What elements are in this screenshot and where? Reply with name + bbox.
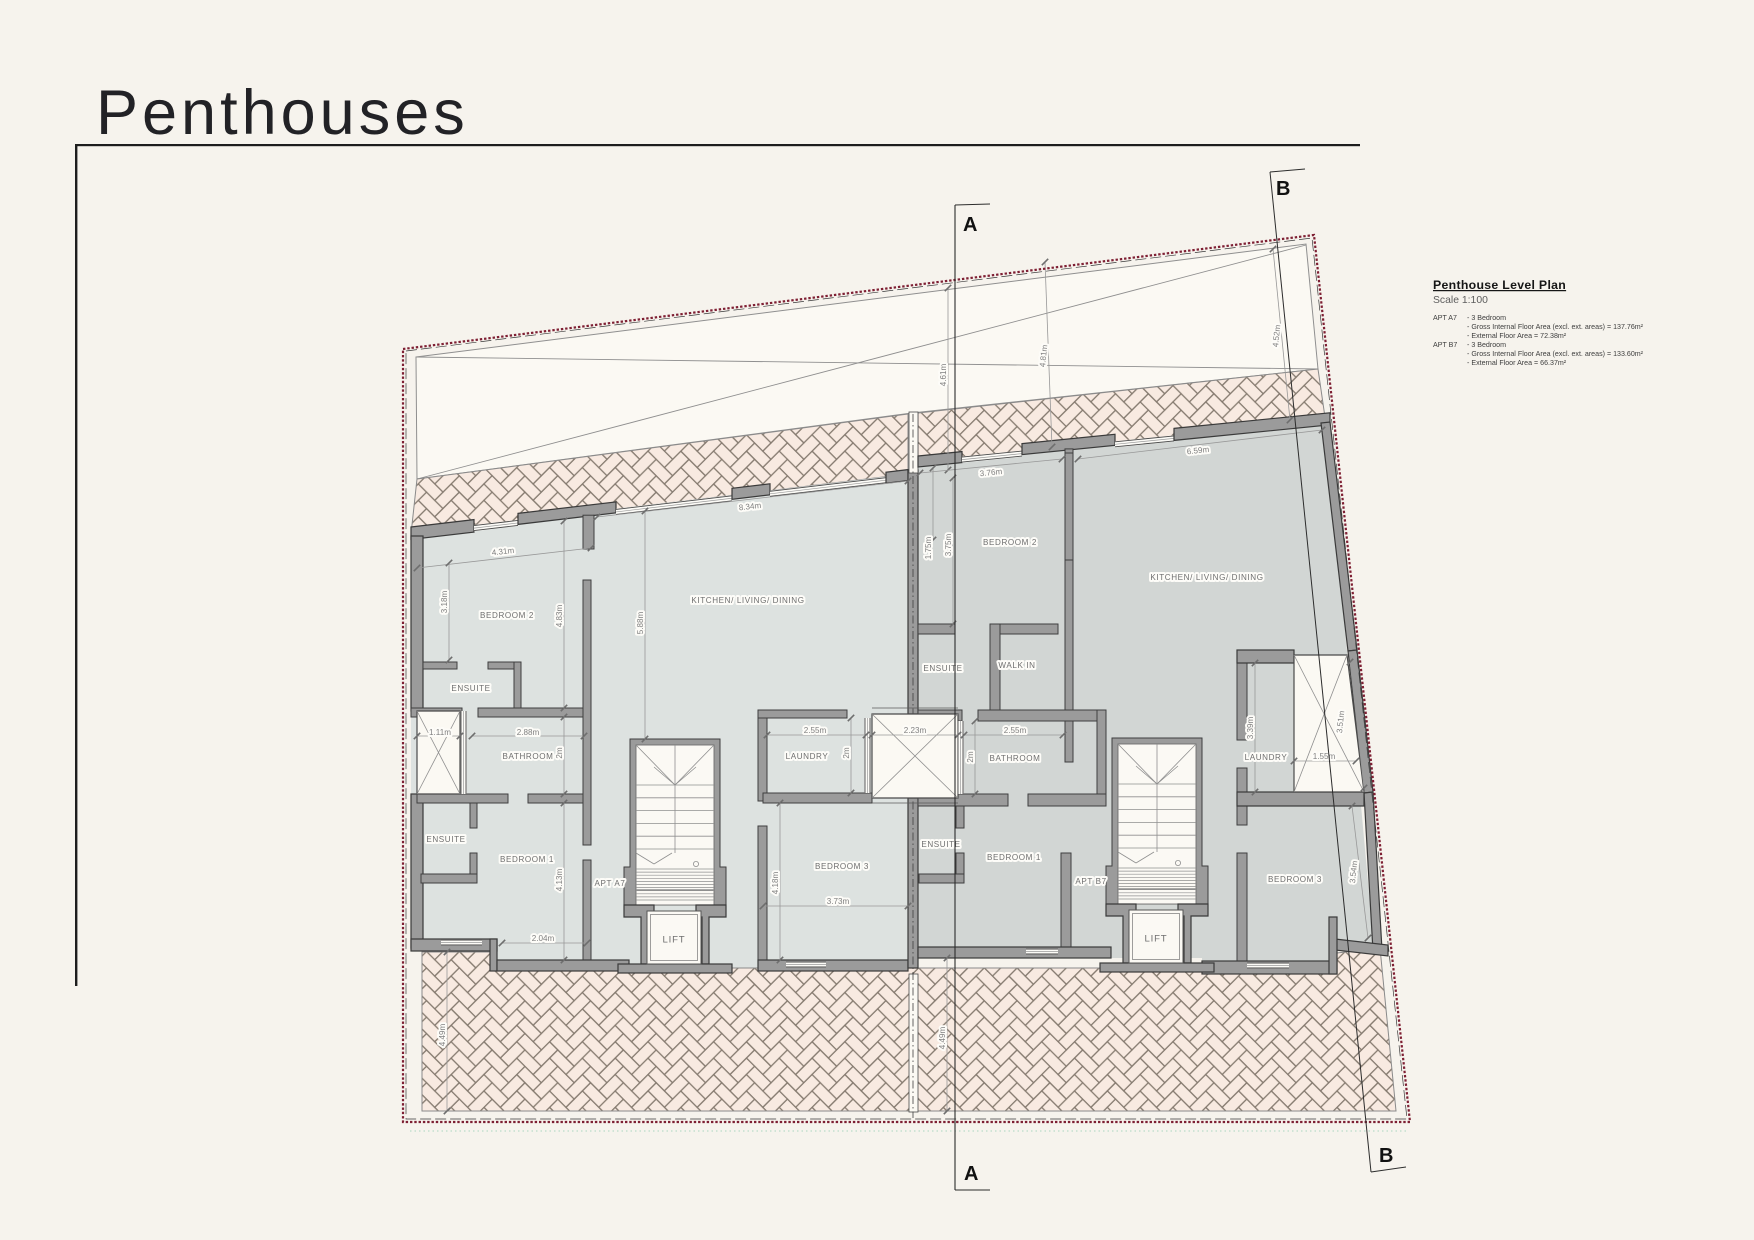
svg-text:A: A	[963, 214, 977, 236]
svg-text:- Gross Internal Floor Area (: - Gross Internal Floor Area (excl. ext. …	[1467, 350, 1644, 358]
svg-text:APT A7: APT A7	[1433, 314, 1457, 322]
svg-text:KITCHEN/ LIVING/ DINING: KITCHEN/ LIVING/ DINING	[1150, 573, 1263, 582]
svg-text:Penthouses: Penthouses	[96, 78, 469, 148]
svg-text:1.75m: 1.75m	[924, 536, 933, 559]
svg-text:2.55m: 2.55m	[804, 726, 827, 735]
svg-text:BEDROOM 2: BEDROOM 2	[480, 611, 534, 620]
svg-text:Penthouse Level Plan: Penthouse Level Plan	[1433, 278, 1566, 292]
svg-text:A: A	[964, 1163, 978, 1185]
svg-text:B: B	[1276, 178, 1290, 200]
svg-text:BEDROOM 3: BEDROOM 3	[1268, 875, 1322, 884]
svg-text:LIFT: LIFT	[1145, 934, 1168, 945]
svg-text:LAUNDRY: LAUNDRY	[1245, 753, 1288, 762]
svg-text:5.88m: 5.88m	[636, 611, 645, 634]
svg-text:3.73m: 3.73m	[827, 897, 850, 906]
svg-text:WALK IN: WALK IN	[998, 661, 1035, 670]
svg-text:2.88m: 2.88m	[517, 728, 540, 737]
svg-text:2m: 2m	[966, 751, 975, 763]
svg-text:APT B7: APT B7	[1433, 341, 1457, 349]
svg-text:LAUNDRY: LAUNDRY	[786, 752, 829, 761]
svg-text:BEDROOM 1: BEDROOM 1	[500, 855, 554, 864]
svg-text:3.18m: 3.18m	[440, 590, 449, 613]
svg-text:- 3 Bedroom: - 3 Bedroom	[1467, 341, 1506, 349]
svg-text:4.13m: 4.13m	[555, 868, 564, 891]
svg-text:4.83m: 4.83m	[555, 604, 564, 627]
svg-text:4.61m: 4.61m	[939, 363, 948, 386]
svg-text:BEDROOM 1: BEDROOM 1	[987, 853, 1041, 862]
svg-text:3.39m: 3.39m	[1246, 716, 1255, 739]
svg-text:3.75m: 3.75m	[944, 533, 953, 556]
svg-text:B: B	[1379, 1145, 1393, 1167]
svg-text:- 3 Bedroom: - 3 Bedroom	[1467, 314, 1506, 322]
svg-text:- External Floor Area = 72.38m: - External Floor Area = 72.38m²	[1467, 332, 1567, 340]
svg-text:APT A7: APT A7	[595, 879, 626, 888]
svg-text:4.49m: 4.49m	[438, 1023, 447, 1046]
svg-text:KITCHEN/ LIVING/ DINING: KITCHEN/ LIVING/ DINING	[691, 596, 804, 605]
svg-text:4.18m: 4.18m	[771, 871, 780, 894]
svg-text:BATHROOM: BATHROOM	[990, 754, 1041, 763]
svg-text:2.23m: 2.23m	[904, 726, 927, 735]
svg-text:1.11m: 1.11m	[429, 728, 451, 737]
svg-text:ENSUITE: ENSUITE	[426, 835, 465, 844]
svg-text:2.55m: 2.55m	[1004, 726, 1027, 735]
svg-text:BEDROOM 2: BEDROOM 2	[983, 538, 1037, 547]
svg-text:BEDROOM 3: BEDROOM 3	[815, 862, 869, 871]
svg-text:2m: 2m	[842, 747, 851, 759]
svg-text:ENSUITE: ENSUITE	[451, 684, 490, 693]
svg-text:APT B7: APT B7	[1075, 877, 1106, 886]
svg-text:Scale 1:100: Scale 1:100	[1433, 295, 1488, 306]
svg-text:2.04m: 2.04m	[532, 934, 555, 943]
svg-text:LIFT: LIFT	[663, 935, 686, 946]
svg-text:1.55m: 1.55m	[1313, 752, 1336, 761]
svg-text:2m: 2m	[555, 747, 564, 759]
svg-text:- Gross Internal Floor Area (: - Gross Internal Floor Area (excl. ext. …	[1467, 323, 1644, 331]
svg-text:ENSUITE: ENSUITE	[923, 664, 962, 673]
svg-text:4.49m: 4.49m	[938, 1026, 947, 1049]
svg-text:BATHROOM: BATHROOM	[503, 752, 554, 761]
svg-text:- External Floor Area = 66.37m: - External Floor Area = 66.37m²	[1467, 359, 1567, 367]
